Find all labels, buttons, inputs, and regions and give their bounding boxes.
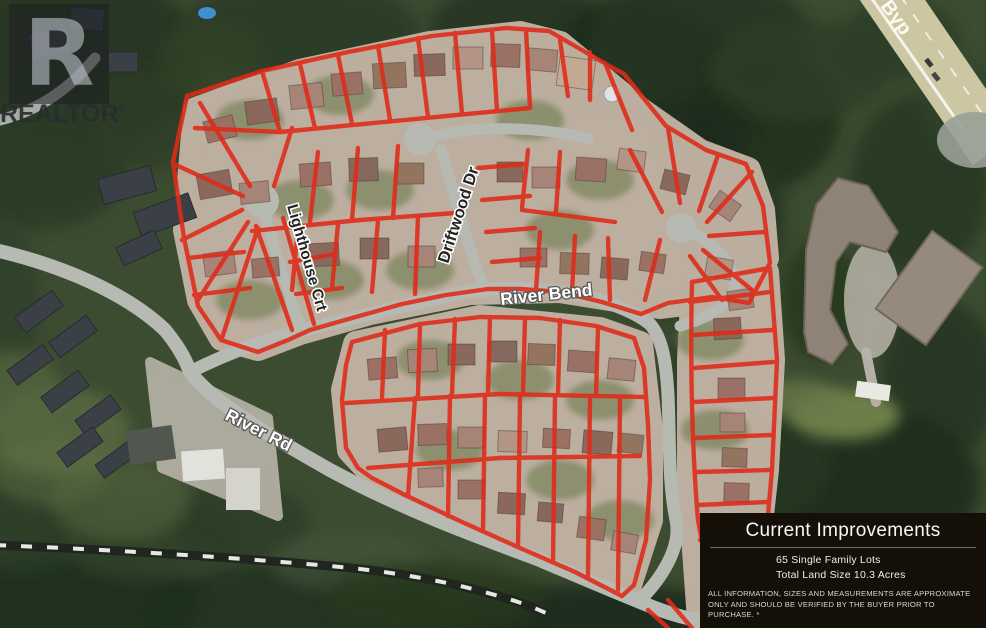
aerial-listing-image: Driftwood Dr Lighthouse Crt River Bend R…	[0, 0, 986, 628]
info-panel: Current Improvements 65 Single Family Lo…	[700, 513, 986, 628]
info-panel-title: Current Improvements	[700, 520, 986, 542]
culdesac-bulb-driftwood	[404, 123, 436, 155]
disclaimer-text: ALL INFORMATION, SIZES AND MEASUREMENTS …	[708, 589, 980, 620]
lot-count-line: 65 Single Family Lots	[776, 554, 986, 566]
culdesac-bulb-east	[666, 213, 696, 243]
land-size-line: Total Land Size 10.3 Acres	[776, 569, 986, 581]
info-panel-divider	[710, 547, 976, 548]
